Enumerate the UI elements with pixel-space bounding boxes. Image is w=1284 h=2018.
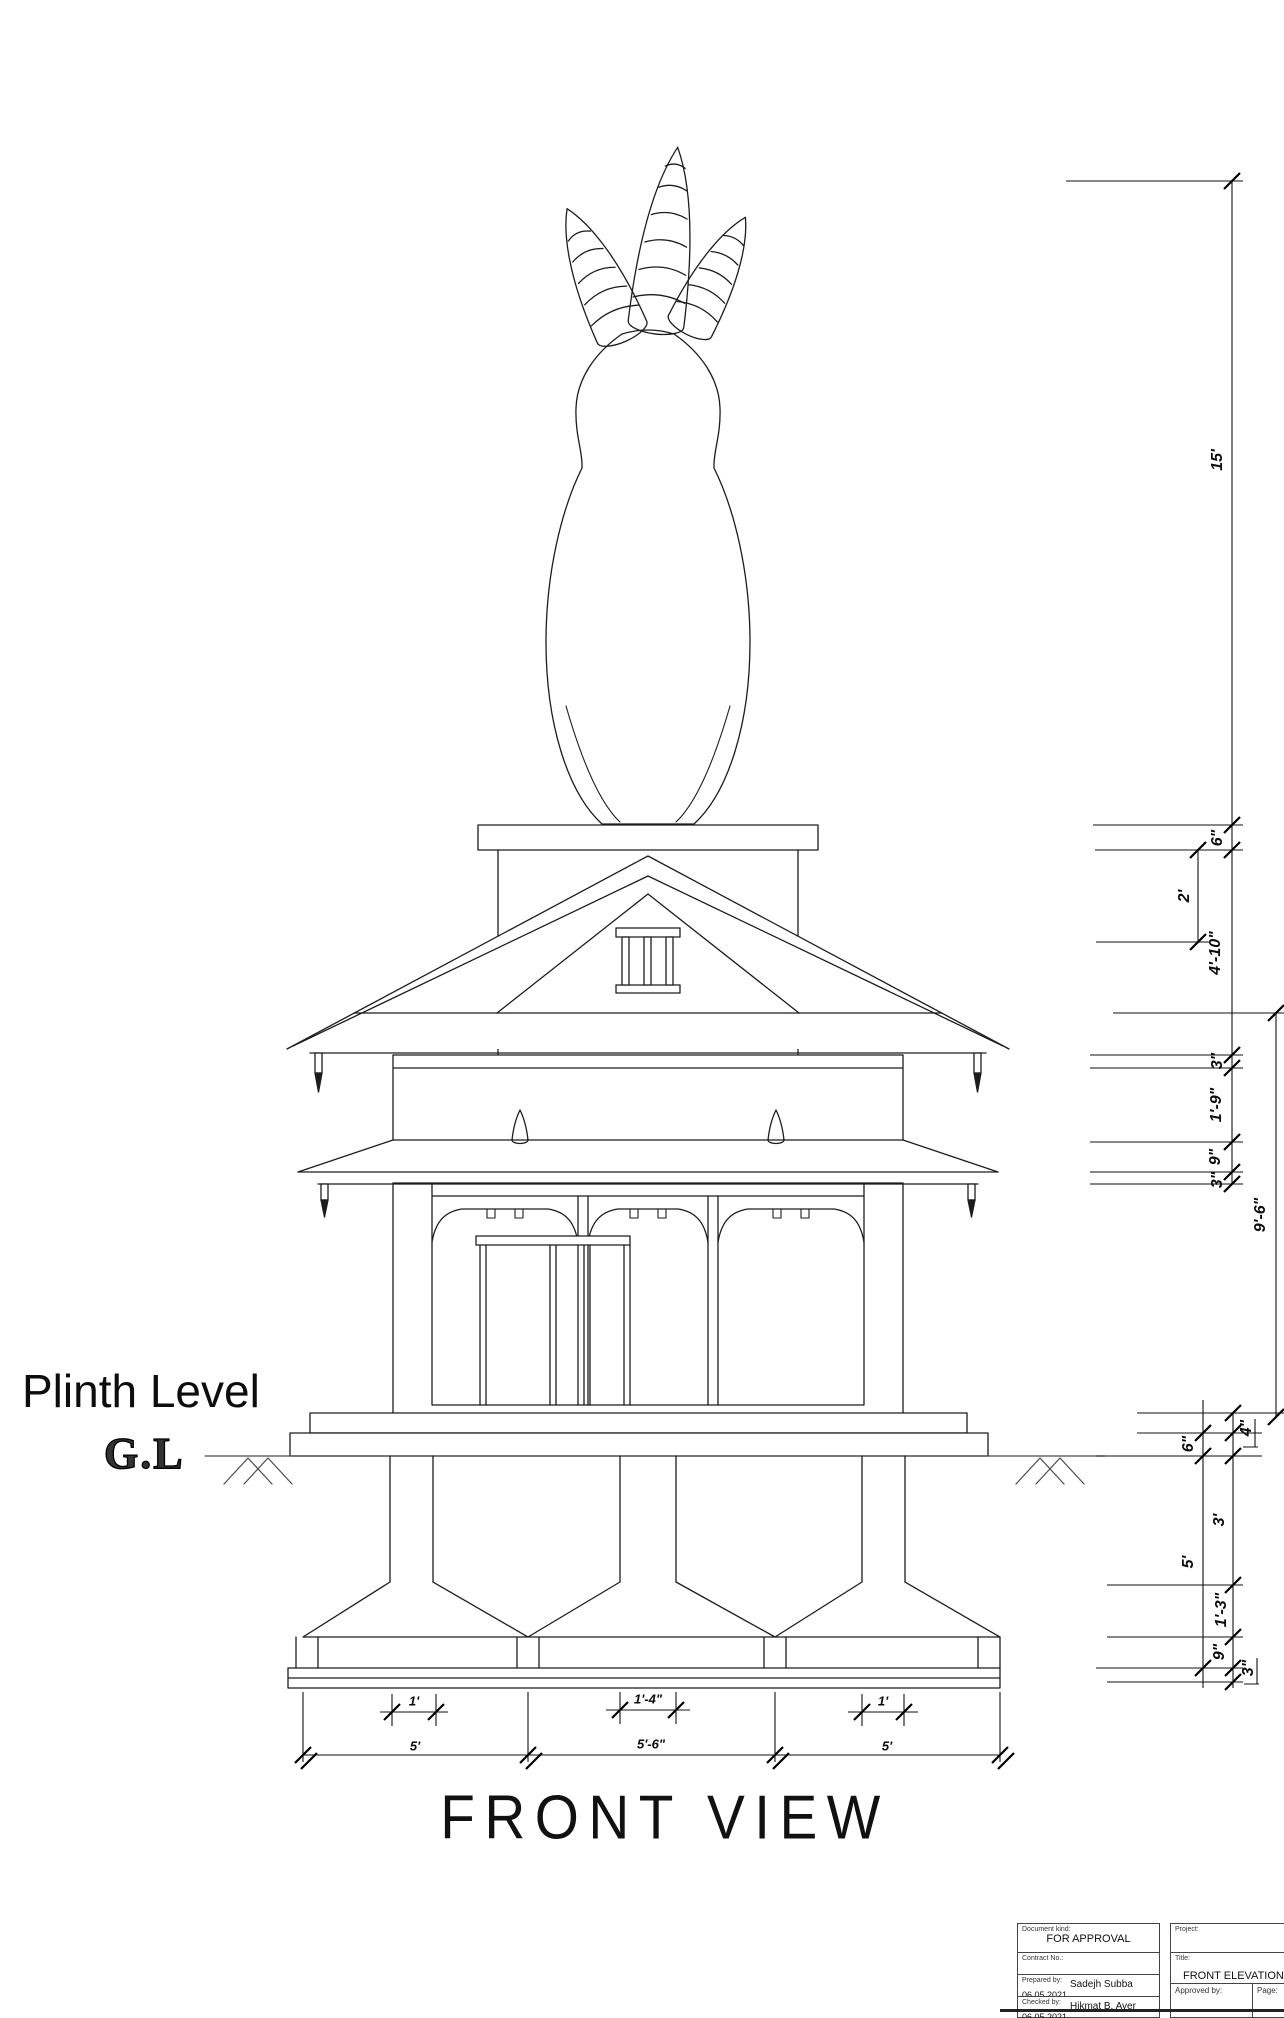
dim-3ft-pier: 3'	[1211, 1514, 1229, 1527]
dim-1ft-right-pier: 1'	[878, 1694, 888, 1709]
sheet-border-bottom	[1000, 2009, 1284, 2012]
band-cone-left	[512, 1110, 528, 1144]
dim-2ft: 2'	[1176, 890, 1194, 903]
prepared-by-value: Sadejh Subba	[1070, 1975, 1133, 1990]
dim-6in-slab: 6"	[1180, 1436, 1198, 1452]
dim-9in-roof: 9"	[1207, 1149, 1225, 1165]
prepared-by-label: Prepared by:	[1018, 1975, 1070, 1984]
eave-spike-left	[315, 1053, 322, 1092]
title-block-right: Project: Title: FRONT ELEVATION Approved…	[1170, 1923, 1284, 2018]
elevation-drawing	[0, 0, 1284, 2018]
finial-horn-middle	[627, 144, 705, 337]
dim-4in-slab: 4"	[1238, 1420, 1256, 1436]
dim-9in-stub: 9"	[1211, 1644, 1229, 1660]
lower-eave-spike-left	[321, 1184, 328, 1217]
ground-level-label: G.L	[104, 1428, 185, 1479]
document-kind-value: FOR APPROVAL	[1018, 1933, 1159, 1945]
dim-3in-fascia: 3"	[1209, 1172, 1227, 1188]
gable-vent-window	[616, 928, 680, 993]
middle-band	[393, 1055, 903, 1144]
plinth	[290, 1413, 988, 1456]
lower-eave-spike-right	[968, 1184, 975, 1217]
dim-1ft-left-pier: 1'	[409, 1694, 419, 1709]
dim-3in-footing-slab: 3"	[1240, 1660, 1258, 1676]
dim-4ft10in: 4'-10"	[1207, 931, 1225, 974]
door-frames	[476, 1236, 630, 1405]
dim-5ft-foundation: 5'	[1180, 1556, 1198, 1569]
checked-by-label: Checked by:	[1018, 1997, 1070, 2006]
finial-horn-right	[665, 206, 767, 345]
drawing-sheet: 15' 6" 2' 4'-10" 3" 1'-9" 9" 3" 9'-6" 4"…	[0, 0, 1284, 2018]
checked-date: 06.05.2021	[1018, 2012, 1159, 2018]
view-title: FRONT VIEW	[440, 1782, 889, 1853]
approved-by-label: Approved by:	[1171, 1984, 1253, 2017]
finial-gourd	[546, 330, 750, 824]
project-label: Project:	[1171, 1924, 1284, 1933]
plinth-level-label: Plinth Level	[22, 1364, 260, 1418]
dim-6in-plate: 6"	[1209, 830, 1227, 846]
document-kind-label: Document kind:	[1018, 1924, 1159, 1933]
eave-spike-right	[974, 1053, 981, 1092]
dim-5ft6in-center-footing: 5'-6"	[637, 1737, 665, 1752]
title-label: Title:	[1171, 1953, 1190, 1962]
dim-1ft9in: 1'-9"	[1208, 1088, 1226, 1123]
contract-no-label: Contract No.:	[1018, 1953, 1159, 1962]
dim-9ft6in: 9'-6"	[1252, 1198, 1270, 1233]
finial-base-plate	[478, 825, 818, 850]
upper-roof	[287, 856, 1009, 1092]
dim-1ft4in-center-pier: 1'-4"	[634, 1692, 662, 1707]
dim-3in-band: 3"	[1209, 1053, 1227, 1069]
lower-roof	[298, 1140, 998, 1217]
dim-5ft-left-footing: 5'	[410, 1739, 420, 1754]
page-label: Page:	[1253, 1984, 1278, 1995]
foundation	[288, 1456, 1000, 1688]
dim-5ft-right-footing: 5'	[882, 1739, 892, 1754]
ground-line	[205, 1456, 1105, 1484]
dim-15ft: 15'	[1209, 449, 1227, 471]
band-cone-right	[768, 1110, 784, 1144]
main-body	[393, 1183, 903, 1413]
prepared-date: 06.05.2021	[1018, 1990, 1159, 1997]
dim-1ft3in-flare: 1'-3"	[1213, 1593, 1231, 1628]
sheet-title-value: FRONT ELEVATION	[1171, 1962, 1284, 1982]
title-block-left: Document kind: FOR APPROVAL Contract No.…	[1017, 1923, 1160, 2018]
